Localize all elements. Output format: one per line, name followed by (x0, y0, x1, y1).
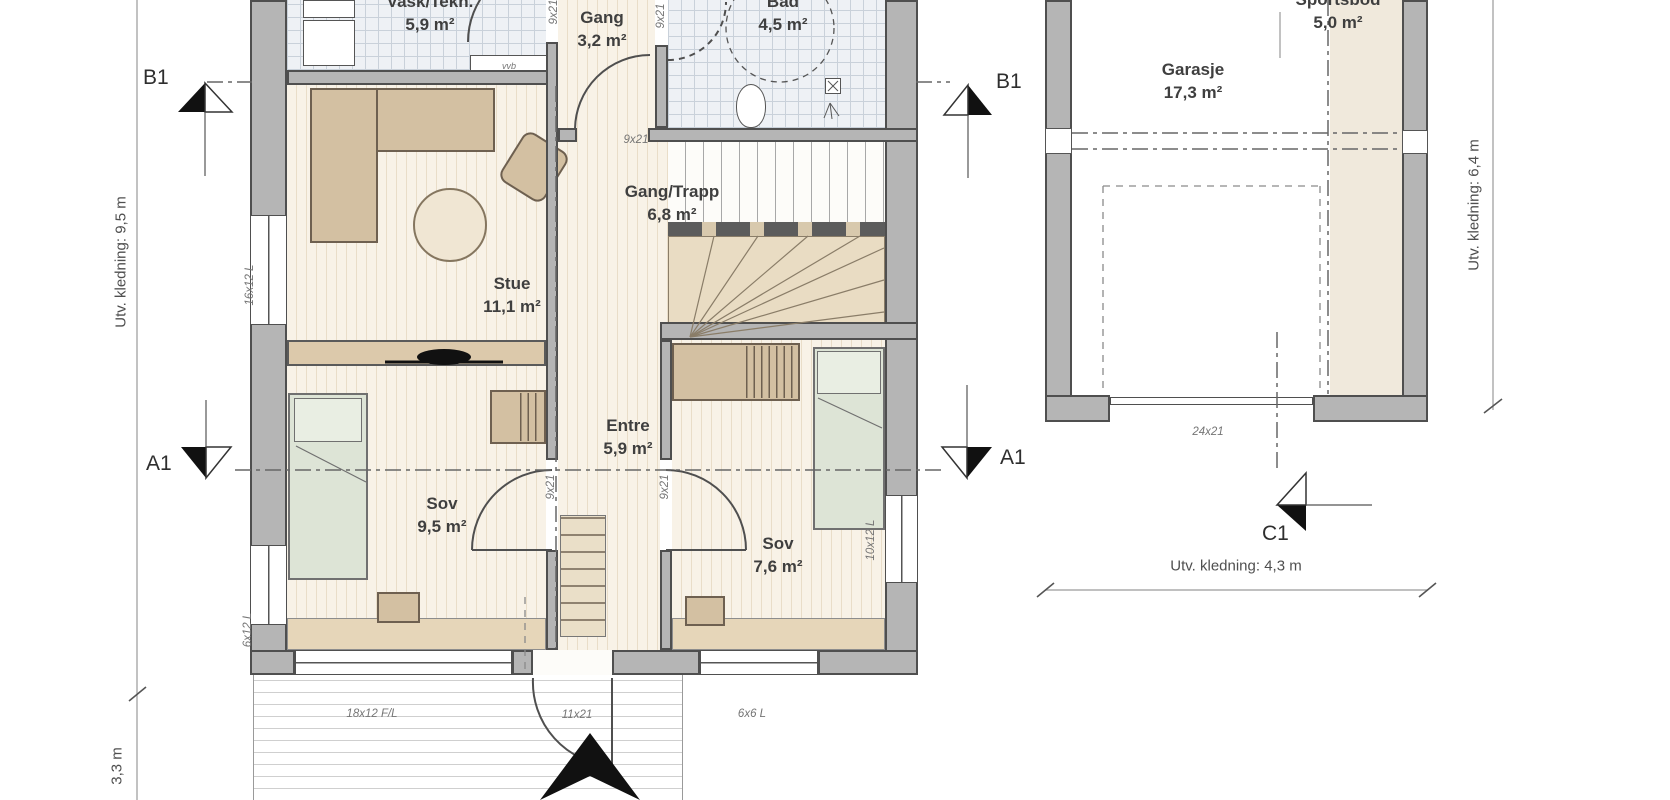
wall-stair-sov2 (660, 322, 918, 340)
marker-b1-left-icon (178, 83, 205, 112)
label-door-top-right: 9x21 (655, 4, 667, 29)
room-name: Garasje (1162, 58, 1224, 81)
label-window-left-top: 16x12 L (244, 265, 256, 306)
label-dim-left-wall: Utv. kledning: 9,5 m (113, 196, 130, 327)
wardrobe-sov2-doors (740, 346, 796, 398)
dryer-icon (303, 20, 355, 66)
room-area: 6,8 m² (625, 203, 719, 226)
room-label-garasje: Garasje 17,3 m² (1162, 58, 1224, 104)
room-name: Entre (603, 414, 652, 437)
floor-plan-canvas: Vask/Tekn. 5,9 m² Gang 3,2 m² Bad 4,5 m²… (0, 0, 1670, 800)
label-window-left-bottom: 6x12 L (242, 613, 254, 648)
label-marker-a1-left: A1 (146, 452, 172, 476)
label-window-bottom-left: 18x12 F/L (346, 708, 397, 720)
round-table (413, 188, 487, 262)
marker-a1-right-icon (967, 447, 992, 478)
entrance-deck (253, 675, 683, 800)
label-door-sov2: 9x21 (659, 475, 671, 500)
wall-gang-bad (655, 45, 668, 128)
room-name: Gang (577, 6, 626, 29)
label-window-bottom-right: 6x6 L (738, 708, 766, 720)
room-area: 5,0 m² (1296, 11, 1381, 34)
label-dim-garage-bottom: Utv. kledning: 4,3 m (1170, 558, 1301, 575)
stue-sov-divider (287, 340, 546, 366)
room-area: 5,9 m² (603, 437, 652, 460)
dim-tick-garage-br (1419, 583, 1436, 597)
dresser-sov1 (377, 592, 420, 623)
window-bottom-right (700, 650, 818, 675)
marker-a1-left-outline (206, 447, 231, 478)
floor-drain-icon (825, 78, 841, 94)
garage-wall-bottom-right (1313, 395, 1428, 422)
label-window-right: 10x12 L (865, 520, 877, 561)
dim-tick-garage-bl (1037, 583, 1054, 597)
entre-steps (560, 515, 606, 637)
dim-tick-left (129, 687, 146, 701)
wall-mid-vertical-lower (546, 550, 558, 650)
label-door-gang: 9x21 (624, 134, 649, 146)
marker-c1-outline (1277, 473, 1306, 505)
room-area: 17,3 m² (1162, 81, 1224, 104)
room-area: 4,5 m² (758, 13, 807, 36)
wall-entre-sov2-lower (660, 550, 672, 650)
garage-door-sill (1110, 397, 1313, 405)
label-dim-garage-right: Utv. kledning: 6,4 m (1466, 139, 1483, 270)
pillow-sov2 (817, 351, 881, 394)
label-entry-door: 11x21 (562, 709, 592, 721)
floor-sportsbod (1330, 0, 1402, 396)
label-marker-c1: C1 (1262, 522, 1289, 546)
room-area: 3,2 m² (577, 29, 626, 52)
washer-icon (303, 0, 355, 18)
entry-door-gap (533, 650, 612, 675)
dim-tick-garage-right (1484, 399, 1502, 413)
wall-bottom-4 (818, 650, 918, 675)
room-name: Vask/Tekn. (387, 0, 474, 13)
window-right (885, 495, 918, 583)
label-garage-door: 24x21 (1192, 426, 1223, 438)
garage-wall-bottom-left (1045, 395, 1110, 422)
wardrobe-sov1-doors (514, 393, 542, 441)
room-area: 5,9 m² (387, 13, 474, 36)
label-marker-b1-right: B1 (996, 70, 1022, 94)
room-name: Sportsbod (1296, 0, 1381, 11)
room-label-gang: Gang 3,2 m² (577, 6, 626, 52)
wall-entre-sov2-upper (660, 340, 672, 460)
room-name: Stue (483, 272, 541, 295)
garage-wall-notch-left (1045, 128, 1072, 154)
room-name: Sov (753, 532, 802, 555)
room-area: 9,5 m² (417, 515, 466, 538)
room-area: 11,1 m² (483, 295, 541, 318)
marker-a1-left-icon (181, 447, 206, 478)
room-label-sov2: Sov 7,6 m² (753, 532, 802, 578)
room-area: 7,6 m² (753, 555, 802, 578)
pillow-sov1 (294, 398, 362, 442)
wall-mid-vertical-upper (546, 42, 558, 460)
room-name: Gang/Trapp (625, 180, 719, 203)
window-bottom-left (295, 650, 512, 675)
room-label-sportsbod: Sportsbod 5,0 m² (1296, 0, 1381, 34)
sofa-vertical (310, 88, 378, 243)
marker-b1-right-icon (968, 85, 992, 115)
wall-bottom-3 (612, 650, 700, 675)
room-name: Sov (417, 492, 466, 515)
marker-b1-right-outline (944, 85, 968, 115)
marker-a1-right-outline (942, 447, 967, 478)
garage-wall-right (1402, 0, 1428, 422)
wall-vask-bottom (287, 70, 558, 85)
label-door-top-left: 9x21 (548, 0, 560, 24)
garage-wall-notch-right (1402, 130, 1428, 154)
window-left-bottom (250, 545, 287, 625)
label-marker-a1-right: A1 (1000, 446, 1026, 470)
room-label-stue: Stue 11,1 m² (483, 272, 541, 318)
room-label-entre: Entre 5,9 m² (603, 414, 652, 460)
room-label-sov1: Sov 9,5 m² (417, 492, 466, 538)
wall-gang-bottom-a (558, 128, 577, 142)
label-water-heater: vvb (502, 61, 516, 71)
toilet-icon (736, 84, 766, 128)
room-label-bad: Bad 4,5 m² (758, 0, 807, 36)
garage-wall-left (1045, 0, 1072, 422)
room-label-vask: Vask/Tekn. 5,9 m² (387, 0, 474, 36)
wall-bad-bottom (648, 128, 918, 142)
wall-bottom-2 (512, 650, 533, 675)
room-label-gang-trapp: Gang/Trapp 6,8 m² (625, 180, 719, 226)
label-dim-deck-depth: 3,3 m (109, 747, 126, 785)
marker-b1-left-outline (205, 83, 232, 112)
wall-bottom-1 (250, 650, 295, 675)
label-door-sov1: 9x21 (545, 475, 557, 500)
room-name: Bad (758, 0, 807, 13)
dresser-sov2 (685, 596, 725, 626)
label-marker-b1-left: B1 (143, 66, 169, 90)
